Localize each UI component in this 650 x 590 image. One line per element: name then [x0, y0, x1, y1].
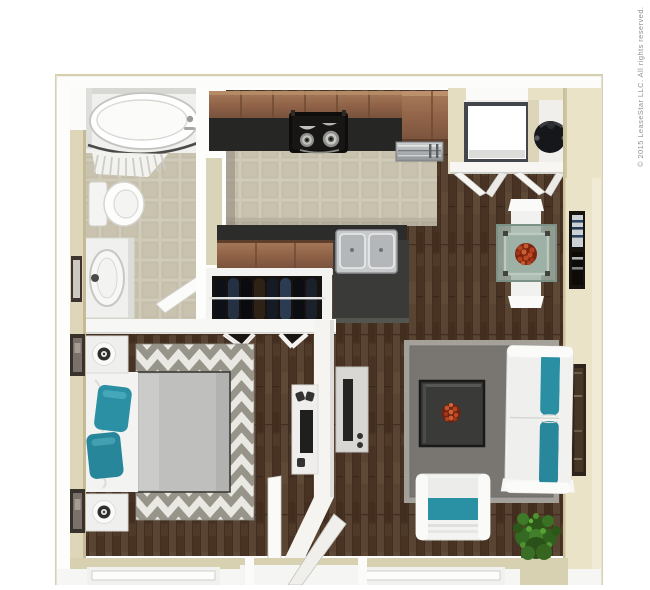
svg-text:© 2015 LeaseStar LLC. All righ: © 2015 LeaseStar LLC. All rights reserve… [636, 7, 645, 167]
